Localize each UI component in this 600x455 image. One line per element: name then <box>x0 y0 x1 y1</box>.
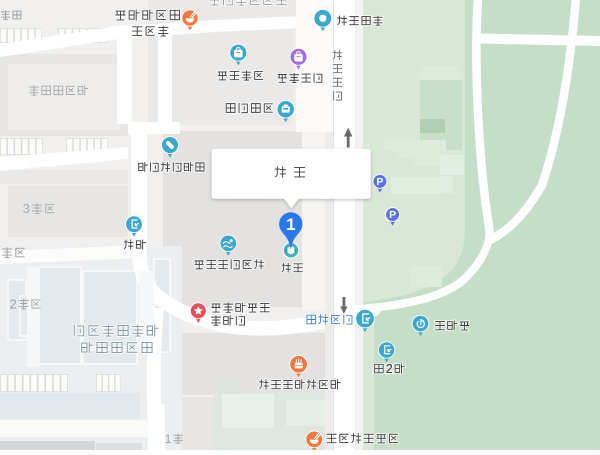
svg-text:3: 3 <box>23 201 30 216</box>
svg-text:P: P <box>376 176 383 188</box>
svg-text:2: 2 <box>10 297 17 312</box>
svg-text:1: 1 <box>286 215 295 234</box>
svg-text:2: 2 <box>386 362 393 376</box>
svg-text:P: P <box>389 209 396 221</box>
svg-text:1: 1 <box>165 432 172 446</box>
